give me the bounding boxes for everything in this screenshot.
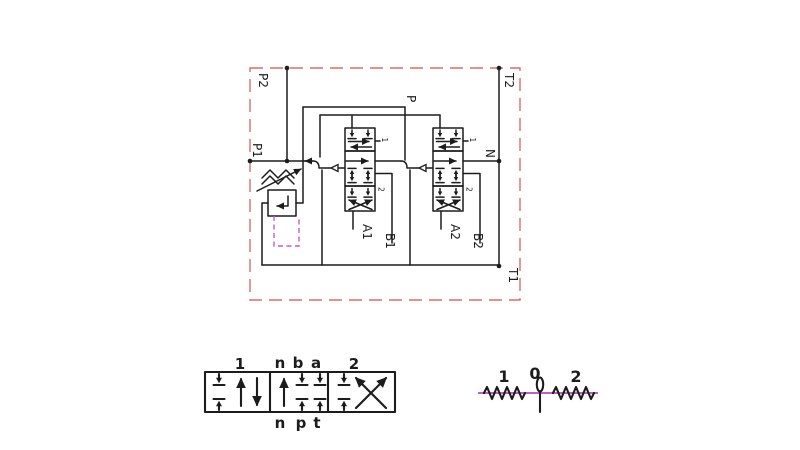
detail-position-1-label: 1 [235,355,245,373]
port-label-t1: T1 [506,267,520,283]
actuator-detail-symbol: 1 0 2 [478,364,598,412]
schematic-canvas: 1 2 [0,0,800,450]
port-label-a1: A1 [360,224,374,240]
port-label-b2: B2 [471,233,485,249]
port-label-b1: B1 [383,233,397,249]
detail-top-port-n: n [275,354,286,372]
detail-top-port-b: b [293,354,304,372]
port-label-p2: P2 [256,73,270,88]
detail-bottom-port-p: p [296,414,307,432]
detail-top-port-a: a [311,354,321,372]
port-label-a2: A2 [448,224,462,240]
actuator-position-2-label: 2 [570,367,581,386]
port-label-p1: P1 [250,143,264,158]
hydraulic-schematic-svg: 1 2 [0,0,800,450]
actuator-position-0-label: 0 [529,364,540,383]
port-label-n: N [483,149,497,158]
port-label-t2: T2 [502,72,516,88]
port-label-p: P [404,95,418,102]
detail-bottom-port-t: t [313,414,320,432]
pressure-relief-valve-symbol [257,169,301,265]
detail-bottom-port-n: n [275,414,286,432]
left-spring [484,387,525,399]
detail-position-2-label: 2 [349,355,359,373]
spool-detail-symbol: 1 2 n b a n p t [205,354,395,432]
pilot-line [274,216,299,246]
actuator-position-1-label: 1 [498,367,509,386]
right-spring [553,387,594,399]
